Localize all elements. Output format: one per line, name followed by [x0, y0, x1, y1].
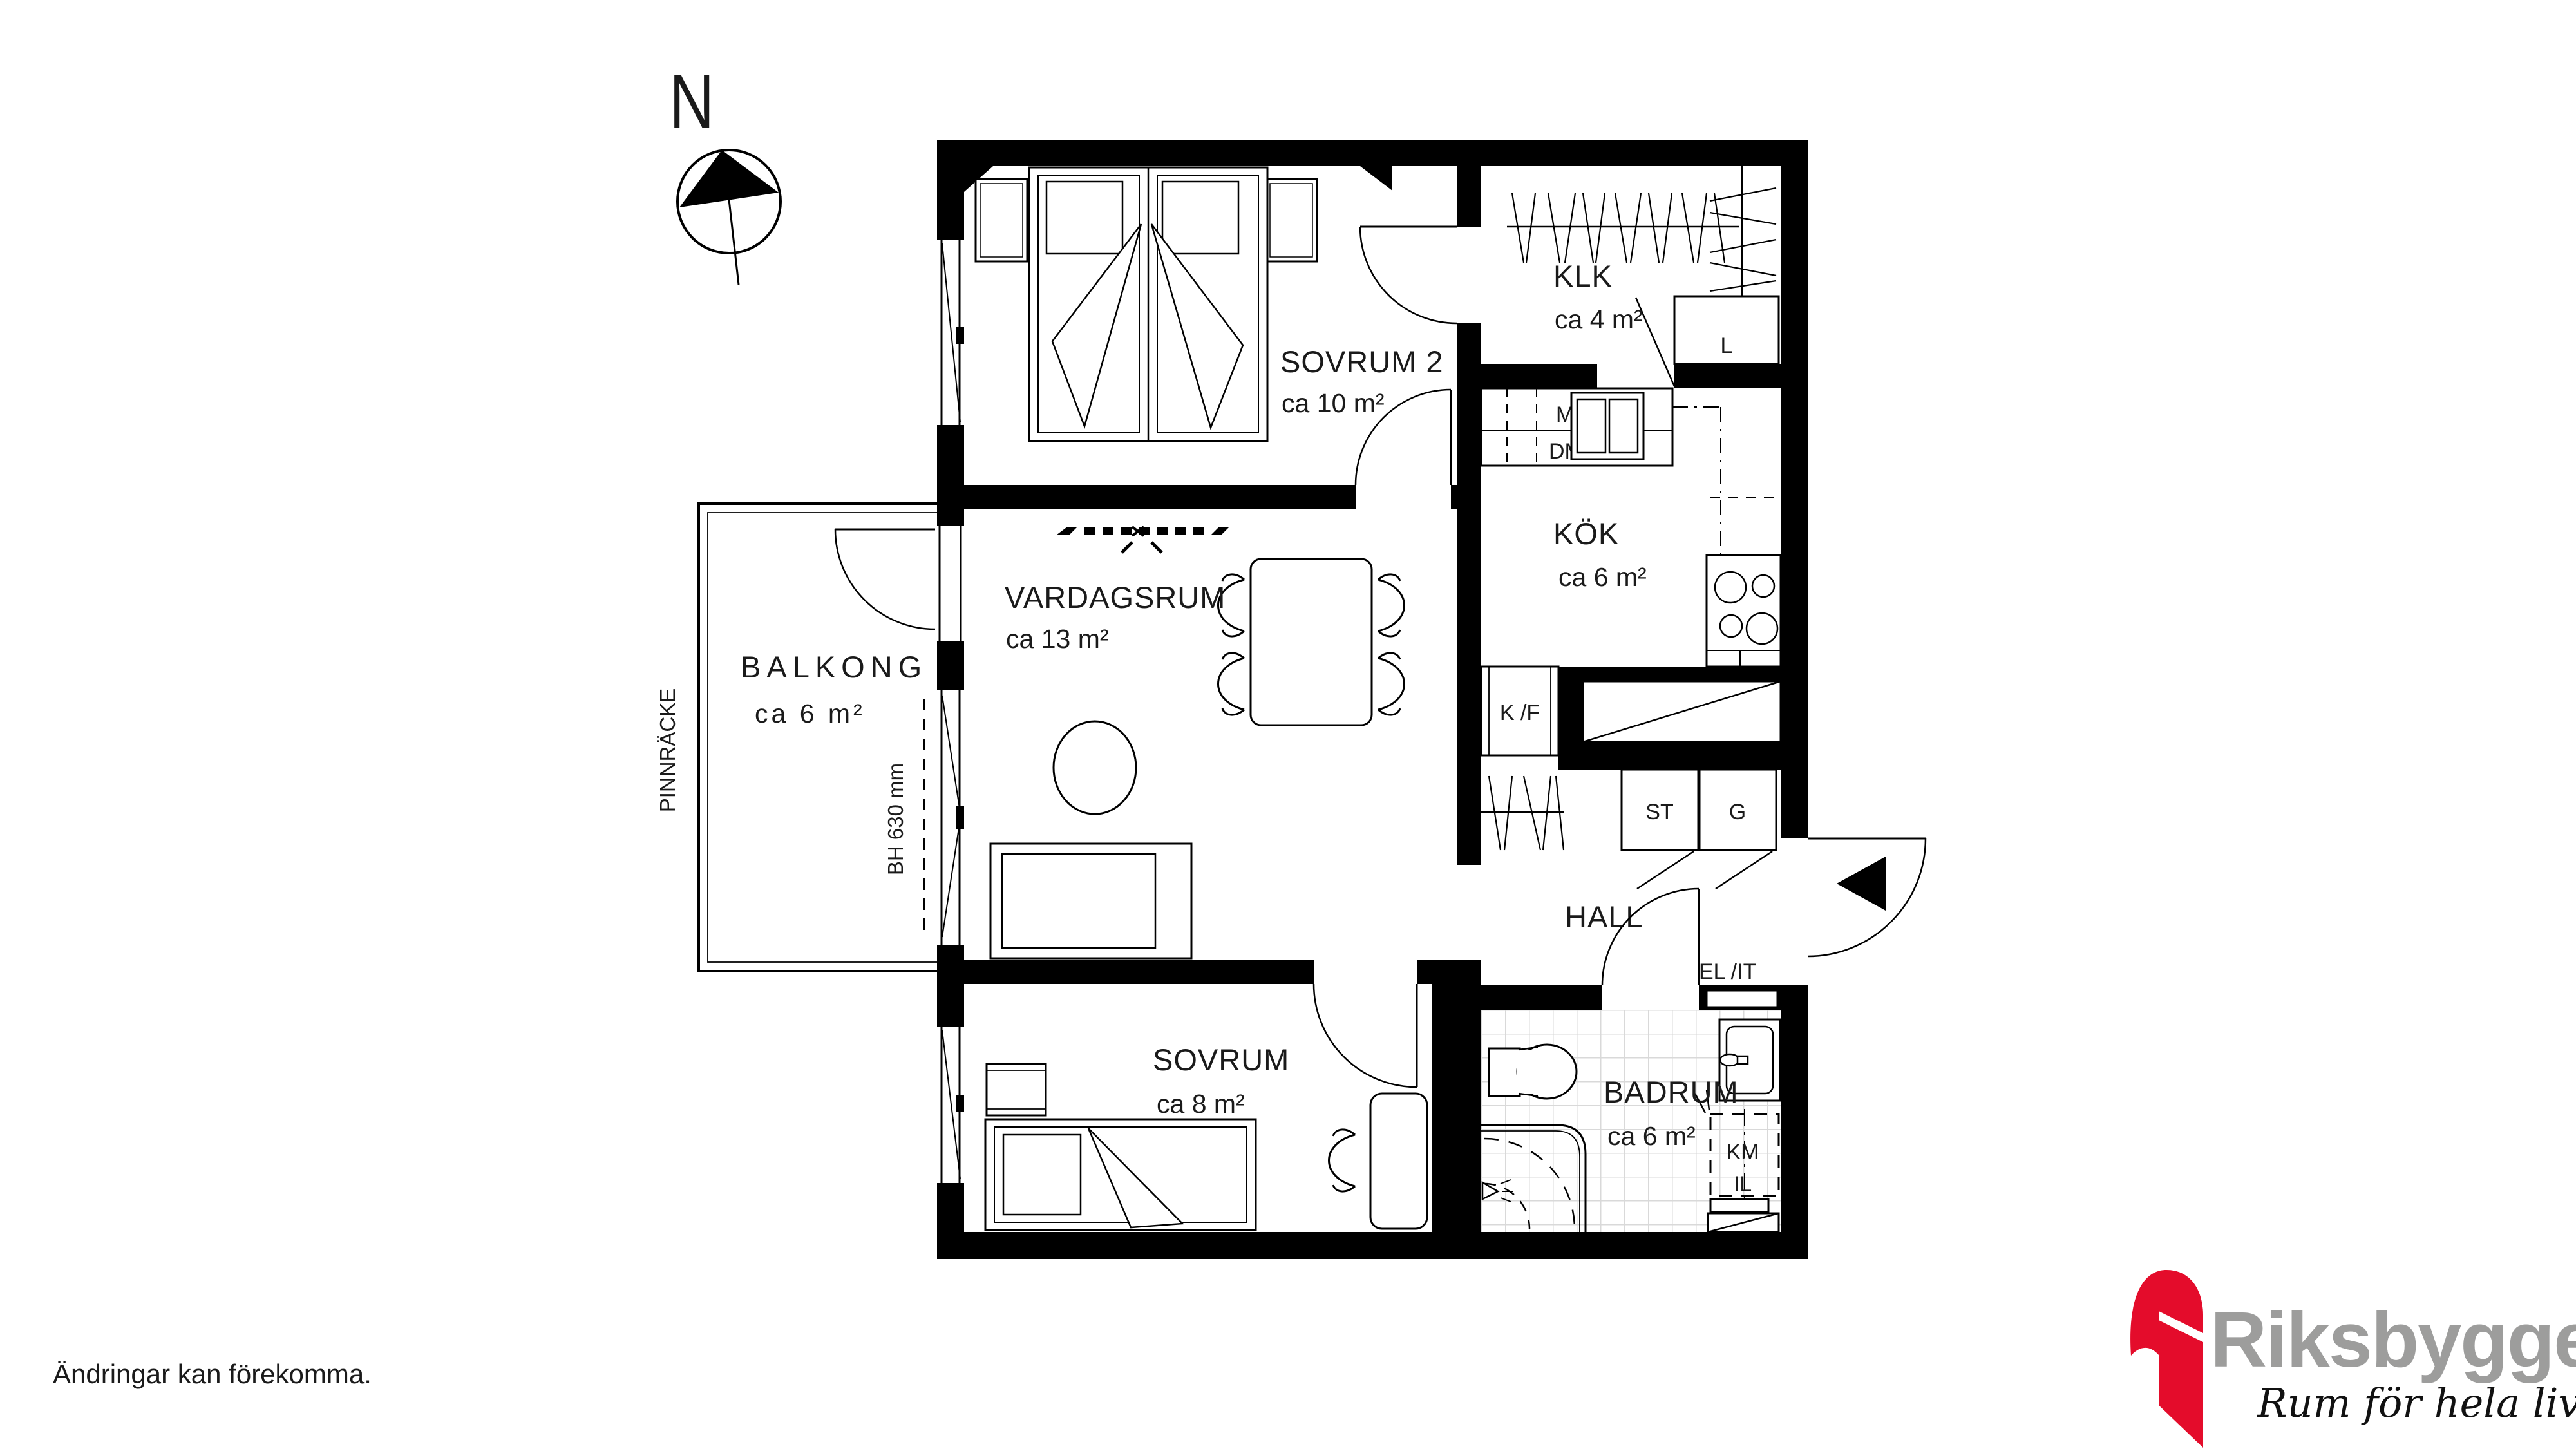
room-label-badrum: BADRUM — [1604, 1075, 1739, 1109]
logo-tagline-text: Rum för hela livet — [2257, 1379, 2576, 1426]
wardrobe-label: G — [1729, 800, 1746, 824]
cleaning-cabinet-label: ST — [1645, 800, 1673, 824]
room-area-kok: ca 6 m² — [1558, 562, 1647, 592]
linen-cabinet-label: L — [1721, 334, 1733, 358]
room-label-balkong: BALKONG — [741, 650, 927, 684]
room-area-badrum: ca 6 m² — [1607, 1121, 1696, 1151]
floorplan-page: N — [0, 0, 2576, 1449]
klk-rail-hatches-vertical — [1710, 188, 1776, 291]
room-area-klk: ca 4 m² — [1555, 305, 1643, 334]
room-label-klk: KLK — [1553, 259, 1613, 293]
room-sovrum: SOVRUM ca 8 m² — [985, 984, 1427, 1230]
railing-label: PINNRÄCKE — [656, 688, 679, 813]
room-klk: L KLK ca 4 m² — [1507, 166, 1779, 386]
entry-door — [1808, 838, 1926, 956]
window-sill-height-label: BH 630 mm — [884, 763, 907, 875]
fridge-freezer-label: K /F — [1500, 701, 1540, 725]
hall-rail-hatches — [1489, 776, 1564, 850]
washing-machine-label: KM — [1727, 1140, 1759, 1164]
el-it-label: EL /IT — [1699, 960, 1756, 984]
room-area-vardagsrum: ca 13 m² — [1006, 624, 1109, 654]
hall-fixtures: K /F ST G HALL EL /IT — [1481, 667, 1781, 1007]
compass-north-label: N — [669, 59, 714, 144]
room-vardagsrum: VARDAGSRUM ca 13 m² — [990, 527, 1405, 958]
riksbyggen-logo: Riksbyggen Rum för hela livet — [2130, 1270, 2576, 1448]
room-area-balkong: ca 6 m² — [755, 699, 866, 728]
balcony: PINNRÄCKE BH 630 mm BALKONG ca 6 m² — [656, 504, 937, 971]
room-label-sovrum: SOVRUM — [1153, 1043, 1289, 1077]
riksbyggen-logo-icon — [2130, 1270, 2203, 1448]
room-label-vardagsrum: VARDAGSRUM — [1005, 580, 1226, 614]
laundry-il-label: IL — [1734, 1172, 1752, 1197]
logo-brand-text: Riksbyggen — [2210, 1296, 2576, 1383]
radiator-symbol — [1056, 527, 1229, 553]
room-sovrum2: SOVRUM 2 ca 10 m² — [976, 167, 1457, 485]
room-badrum: KM IL BADRUM ca 6 m² — [1481, 1010, 1781, 1232]
klk-hanger-rail-hatches — [1512, 193, 1725, 263]
room-area-sovrum: ca 8 m² — [1157, 1089, 1245, 1119]
room-label-kok: KÖK — [1553, 516, 1619, 551]
disclaimer-text: Ändringar kan förekomma. — [53, 1359, 372, 1389]
room-label-sovrum2: SOVRUM 2 — [1280, 345, 1444, 379]
room-kok: M DM KÖK ca 6 m² — [1481, 388, 1781, 667]
room-area-sovrum2: ca 10 m² — [1282, 388, 1385, 418]
compass-icon: N — [669, 59, 781, 285]
entry-arrow-icon — [1837, 857, 1886, 911]
floorplan-drawing: N — [0, 0, 2576, 1449]
